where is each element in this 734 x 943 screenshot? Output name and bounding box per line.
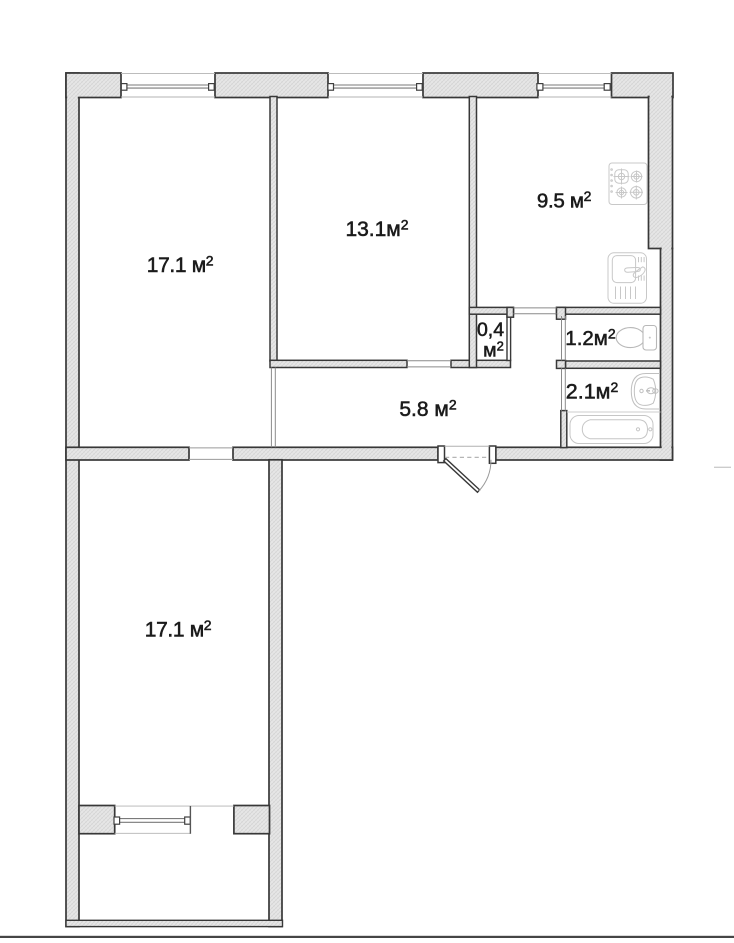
svg-text:17.1 м2: 17.1 м2	[145, 617, 212, 642]
svg-text:13.1м2: 13.1м2	[345, 217, 408, 242]
svg-text:9.5 м2: 9.5 м2	[537, 188, 592, 213]
svg-text:17.1 м2: 17.1 м2	[147, 253, 214, 278]
svg-text:5.8 м2: 5.8 м2	[399, 397, 456, 422]
